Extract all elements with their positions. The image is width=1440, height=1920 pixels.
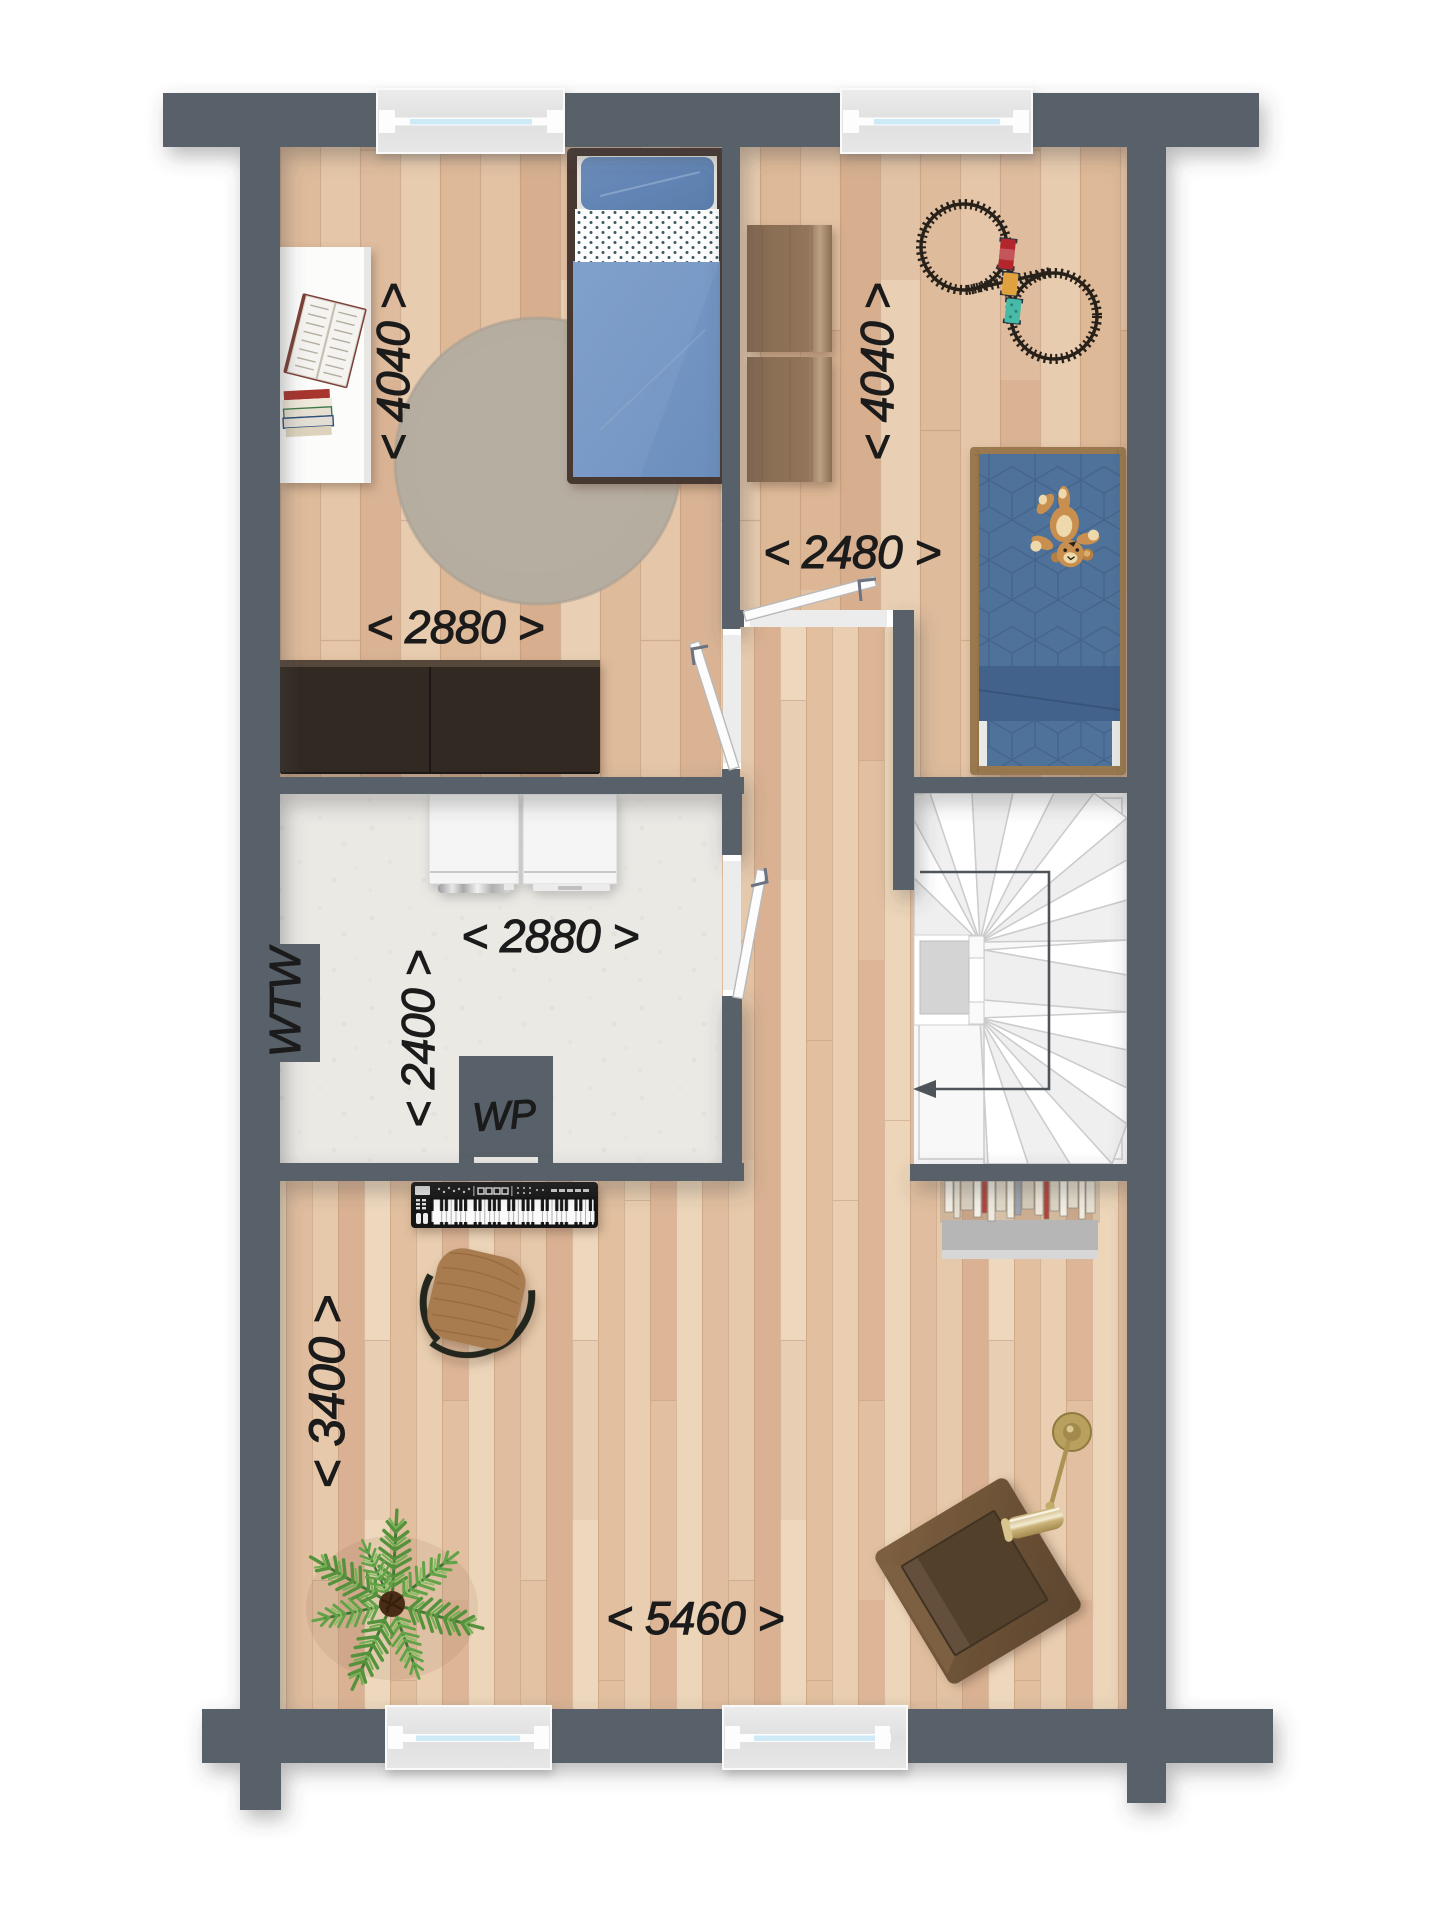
svg-text:< 4040 >: < 4040 >: [367, 283, 419, 461]
svg-text:< 2400 >: < 2400 >: [392, 950, 444, 1128]
svg-text:< 4040 >: < 4040 >: [851, 283, 903, 461]
svg-text:< 5460 >: < 5460 >: [606, 1592, 784, 1644]
svg-text:< 2480 >: < 2480 >: [763, 526, 941, 578]
svg-text:< 2880 >: < 2880 >: [461, 910, 639, 962]
svg-text:< 3400 >: < 3400 >: [299, 1295, 355, 1488]
svg-text:WP: WP: [471, 1092, 538, 1140]
svg-text:< 2880 >: < 2880 >: [366, 601, 544, 653]
svg-text:WTW: WTW: [261, 945, 310, 1057]
